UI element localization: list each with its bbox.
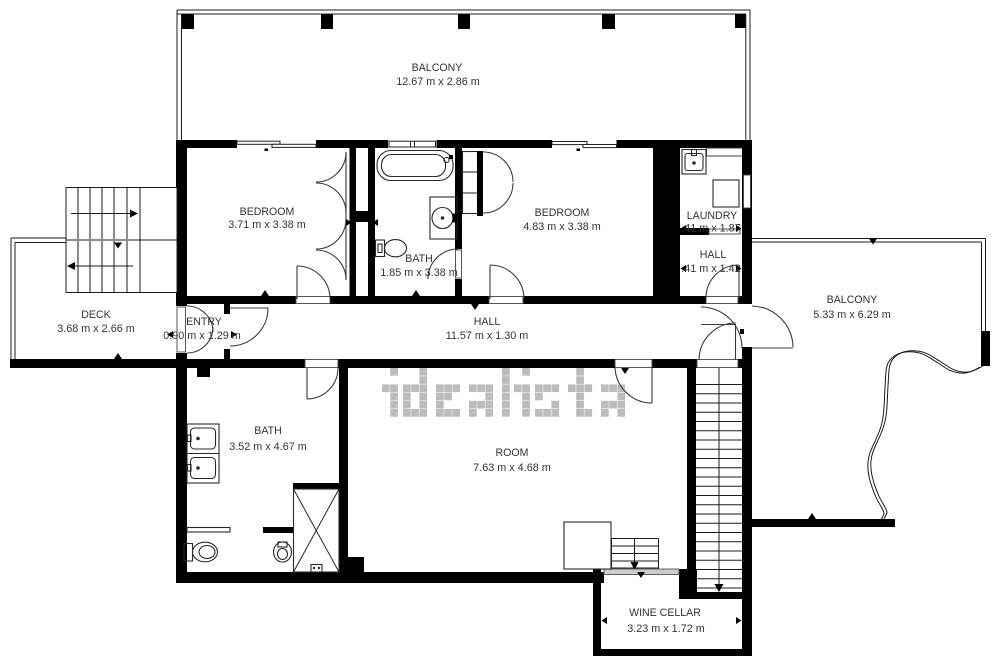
svg-text:3.71 m x 3.38 m: 3.71 m x 3.38 m: [228, 219, 305, 231]
svg-text:3.68 m x 2.66 m: 3.68 m x 2.66 m: [57, 323, 134, 335]
svg-text:BATH: BATH: [254, 425, 281, 437]
svg-text:BATH: BATH: [405, 253, 432, 265]
svg-text:BEDROOM: BEDROOM: [240, 206, 295, 218]
svg-text:12.67 m x 2.86 m: 12.67 m x 2.86 m: [396, 76, 479, 88]
svg-text:7.63 m x 4.68 m: 7.63 m x 4.68 m: [473, 462, 550, 474]
svg-text:0.90 m x 1.29 m: 0.90 m x 1.29 m: [163, 330, 240, 342]
svg-text:11.57 m x 1.30 m: 11.57 m x 1.30 m: [446, 330, 529, 342]
svg-text:ROOM: ROOM: [496, 447, 529, 459]
svg-text:LAUNDRY: LAUNDRY: [687, 210, 737, 222]
svg-text:HALL: HALL: [700, 249, 727, 261]
svg-text:4.83 m x 3.38 m: 4.83 m x 3.38 m: [523, 221, 600, 233]
svg-text:HALL: HALL: [474, 316, 501, 328]
svg-text:3.52 m x 4.67 m: 3.52 m x 4.67 m: [229, 441, 306, 453]
svg-text:3.23 m x 1.72 m: 3.23 m x 1.72 m: [627, 623, 704, 635]
svg-text:WINE CELLAR: WINE CELLAR: [629, 607, 701, 619]
svg-text:1.85 m x 3.38 m: 1.85 m x 3.38 m: [380, 267, 457, 279]
svg-text:BALCONY: BALCONY: [412, 62, 463, 74]
svg-text:.41 m x 1.42: .41 m x 1.42: [681, 263, 740, 275]
svg-text:5.33 m x 6.29 m: 5.33 m x 6.29 m: [813, 309, 890, 321]
svg-text:ENTRY: ENTRY: [186, 316, 222, 328]
svg-text:BALCONY: BALCONY: [827, 294, 878, 306]
svg-text:.41 m x 1.87: .41 m x 1.87: [681, 223, 740, 235]
svg-text:BEDROOM: BEDROOM: [535, 207, 590, 219]
svg-text:DECK: DECK: [81, 309, 110, 321]
